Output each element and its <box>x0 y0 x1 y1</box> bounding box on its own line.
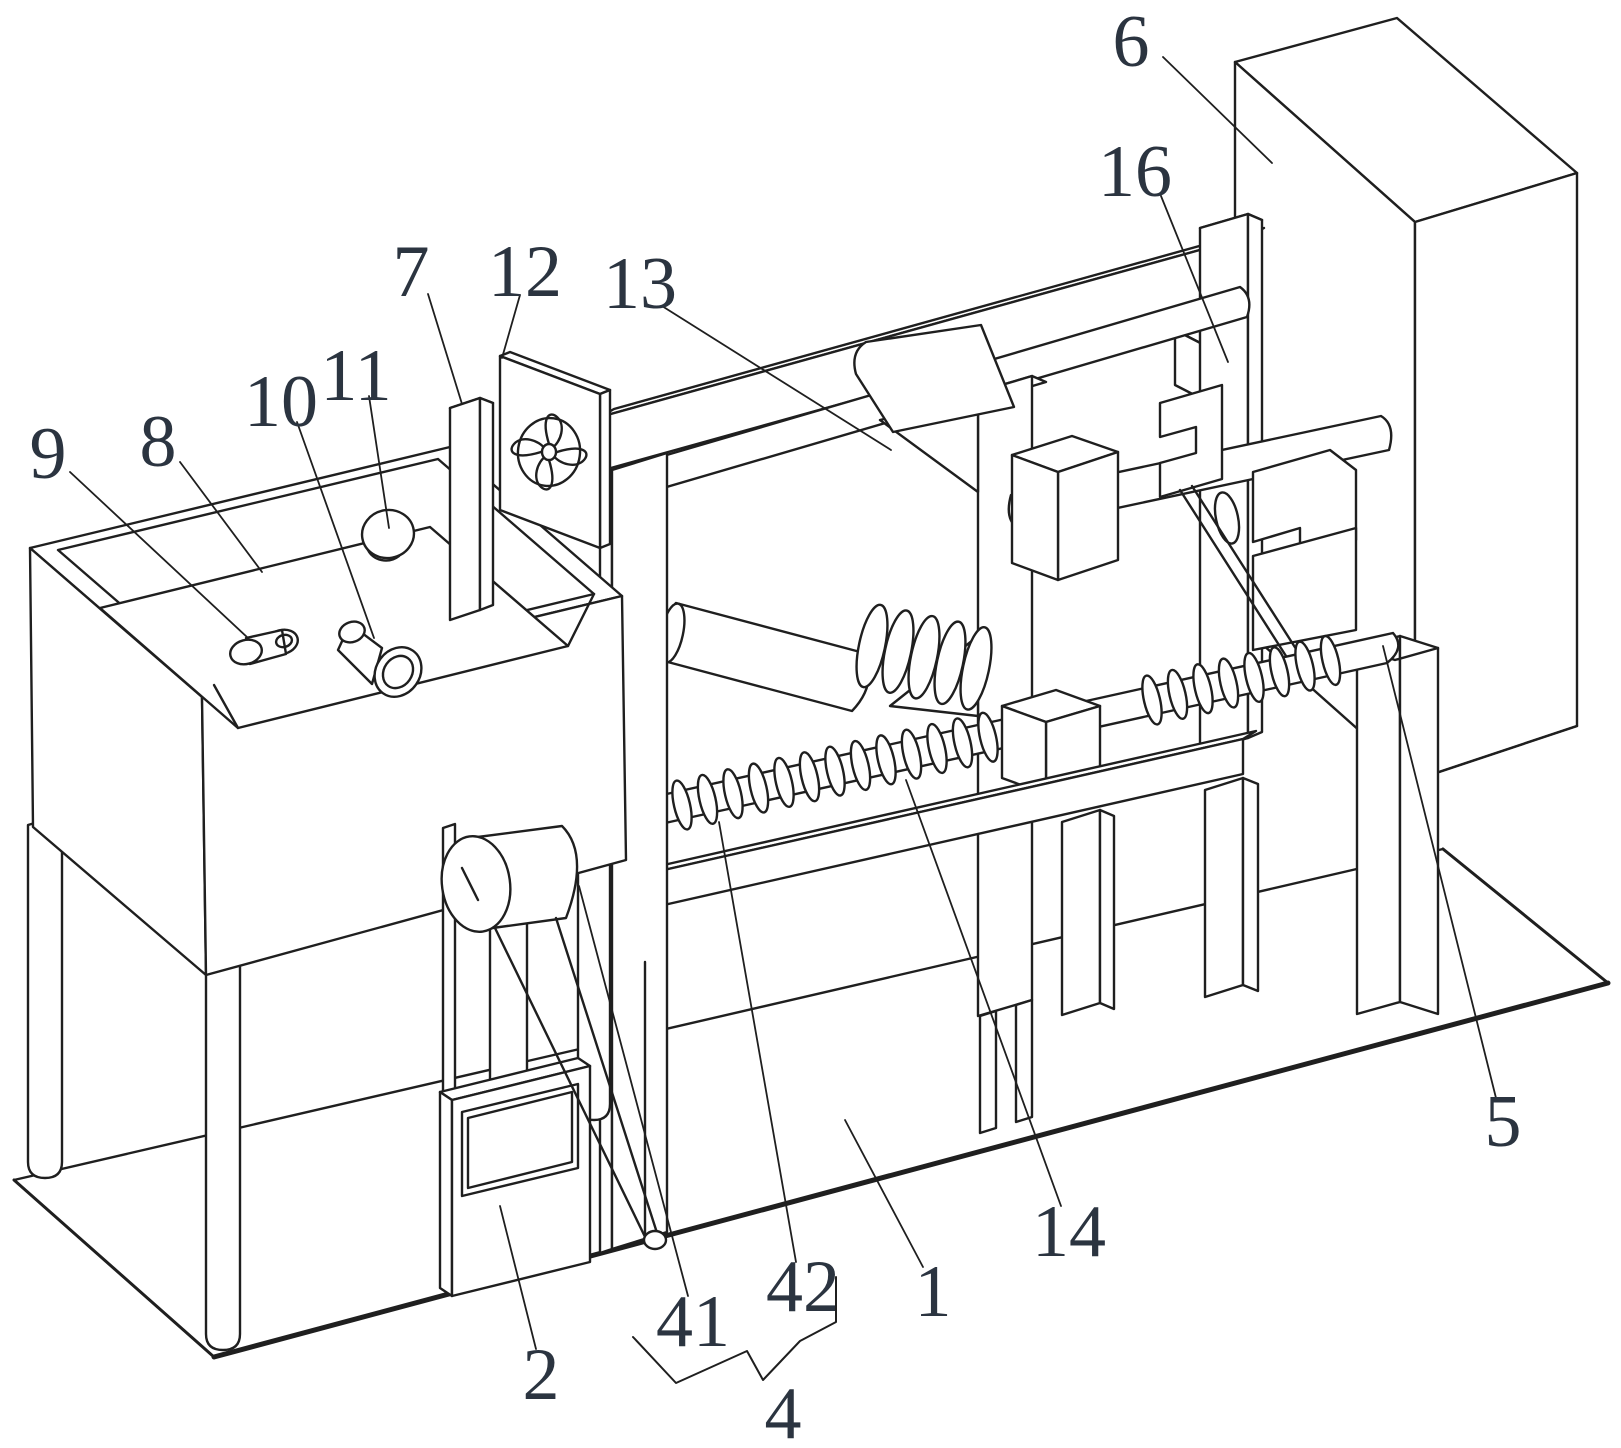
machine-line-drawing: 981011712136165141424124 <box>0 0 1621 1448</box>
callout-16: 16 <box>1098 131 1172 213</box>
callout-8: 8 <box>140 401 177 483</box>
callout-13: 13 <box>603 243 677 325</box>
callout-1: 1 <box>915 1251 952 1333</box>
control-box-2 <box>440 1058 590 1296</box>
callout-41: 41 <box>656 1281 730 1363</box>
patent-figure: 981011712136165141424124 <box>0 0 1621 1448</box>
callout-12: 12 <box>488 231 562 313</box>
leader-7 <box>428 294 462 404</box>
callout-11: 11 <box>320 335 391 417</box>
callout-9: 9 <box>30 413 67 495</box>
callout-42: 42 <box>766 1246 840 1328</box>
callout-6: 6 <box>1113 1 1150 83</box>
callout-10: 10 <box>244 361 318 443</box>
column-7 <box>450 398 493 620</box>
c-block-upper <box>1160 385 1222 497</box>
support-stand-5 <box>1357 636 1438 1014</box>
callout-14: 14 <box>1032 1191 1106 1273</box>
mid-legs <box>1062 810 1114 1015</box>
callout-4: 4 <box>765 1373 802 1448</box>
right-legs <box>1205 778 1258 997</box>
clamp-front-rod <box>1012 436 1118 580</box>
callout-7: 7 <box>393 231 430 313</box>
callout-2: 2 <box>523 1334 560 1416</box>
callout-5: 5 <box>1485 1081 1522 1163</box>
spring-rod <box>655 601 869 711</box>
